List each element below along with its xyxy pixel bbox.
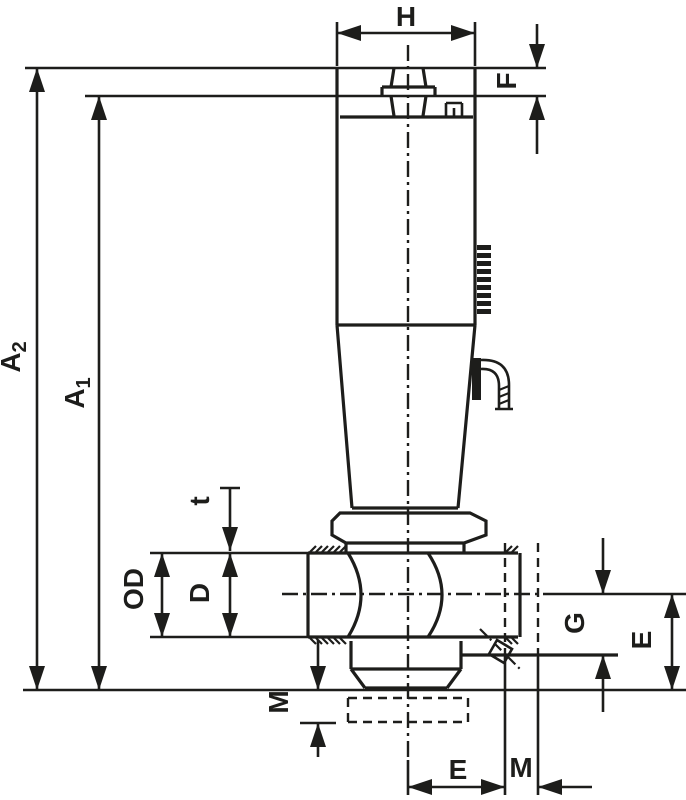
dim-label-d: D [184, 583, 215, 603]
dimension-t: t [184, 488, 240, 551]
dim-label-h: H [396, 1, 416, 32]
dimension-h: H [337, 1, 475, 66]
dimension-m-left: M [263, 640, 336, 757]
dim-label-a1: A1 [59, 377, 95, 408]
dim-label-t: t [184, 496, 215, 505]
knurl-marking [477, 245, 491, 314]
dim-label-a2: A2 [0, 341, 31, 372]
dimension-d: D [184, 553, 230, 637]
drawing-canvas: H F A2 A1 t OD [0, 0, 686, 800]
handle-sides [337, 68, 475, 325]
tapered-neck [337, 325, 475, 508]
dim-label-e-bottom: E [449, 754, 468, 785]
dimension-od: OD [118, 553, 162, 637]
dim-label-g: G [559, 612, 590, 634]
dimension-a2: A2 [0, 68, 37, 690]
dimension-e-right: E [626, 594, 672, 690]
dim-label-m-bottom: M [509, 752, 532, 783]
dimension-f: F [491, 24, 537, 154]
dim-label-od: OD [118, 568, 149, 610]
dimension-m-bottom: M [509, 752, 592, 787]
dimension-g: G [559, 538, 603, 712]
dim-label-e-right: E [626, 631, 657, 650]
side-fitting [472, 358, 513, 409]
bottom-boss [351, 641, 461, 688]
valve-outline [25, 45, 686, 760]
dimension-e-bottom: E [408, 754, 505, 787]
valve-dimension-drawing: H F A2 A1 t OD [0, 0, 686, 800]
drain-plug-detail [480, 629, 522, 671]
dim-label-m-left: M [263, 690, 294, 713]
dim-label-f: F [491, 72, 522, 89]
clip-detail [446, 103, 462, 116]
dimension-a1: A1 [59, 96, 99, 690]
